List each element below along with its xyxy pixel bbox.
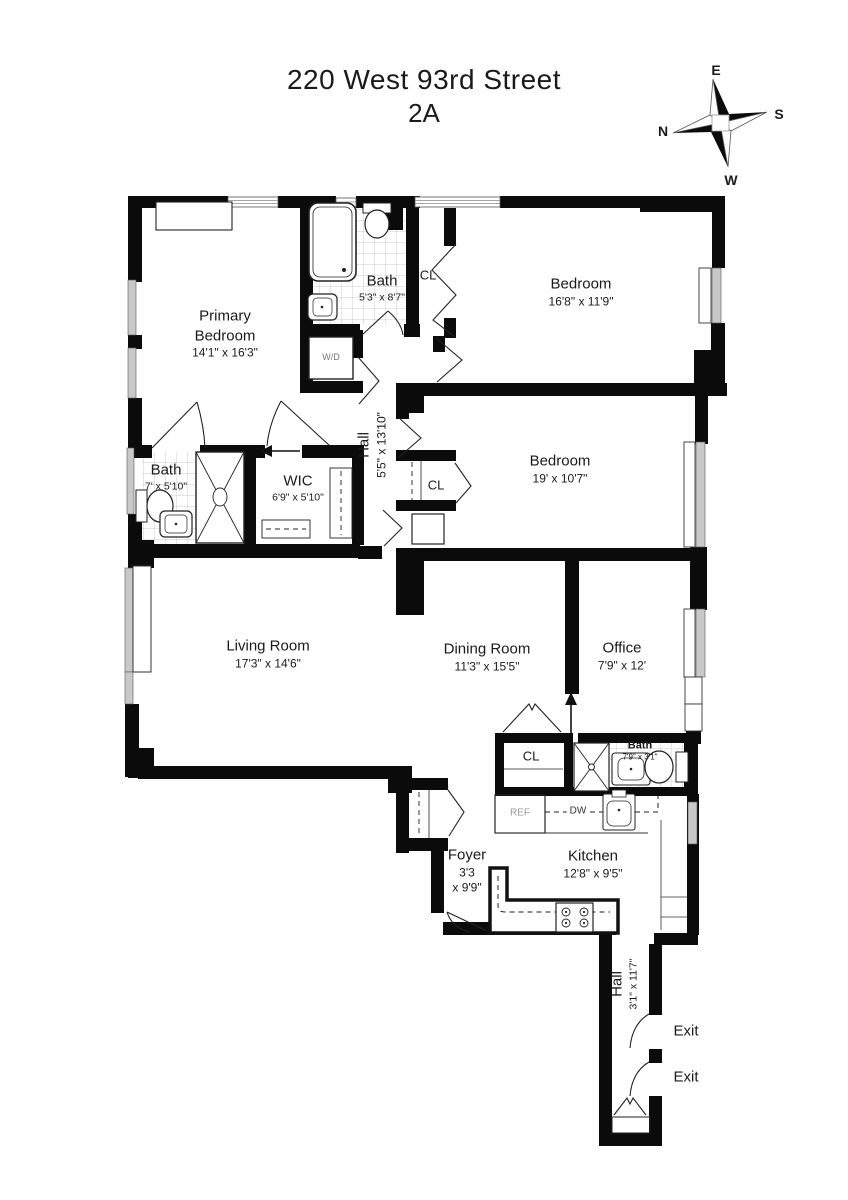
washer-dryer-label: W/D <box>322 352 340 364</box>
room-label-hall-center: Hall 5'5" x 13'10" <box>354 412 389 478</box>
compass-west-label: W <box>724 171 737 189</box>
compass-south-label: S <box>774 105 783 123</box>
closet-label-mid: CL <box>428 478 445 495</box>
compass-rose-graphic <box>673 79 767 167</box>
room-label-wic: WIC 6'9" x 5'10" <box>272 471 324 504</box>
refrigerator-label: REF <box>510 807 530 820</box>
room-label-hall-bottom: Hall 3'1" x 11'7" <box>607 959 640 1010</box>
closet-label-kitchen: CL <box>523 749 540 766</box>
room-label-bath-left: Bath 7' x 5'10" <box>145 460 187 493</box>
dishwasher-label: DW <box>567 805 590 818</box>
floorplan-drawing <box>0 0 848 1200</box>
room-label-foyer: Foyer 3'3 x 9'9" <box>448 846 486 897</box>
room-label-office: Office 7'9" x 12' <box>598 638 646 673</box>
room-label-dining-room: Dining Room 11'3" x 15'5" <box>444 639 531 674</box>
room-label-living-room: Living Room 17'3" x 14'6" <box>226 636 309 671</box>
room-label-bath-top: Bath 5'3" x 8'7" <box>359 271 405 304</box>
compass-north-label: N <box>658 122 668 140</box>
exit-label-1: Exit <box>673 1021 698 1041</box>
floorplan-page: 220 West 93rd Street 2A <box>0 0 848 1200</box>
room-label-kitchen: Kitchen 12'8" x 9'5" <box>563 846 622 881</box>
closet-label-top: CL <box>420 268 437 285</box>
room-label-bedroom-top: Bedroom 16'8" x 11'9" <box>549 274 614 309</box>
room-label-bedroom-mid: Bedroom 19' x 10'7" <box>530 451 591 486</box>
room-label-bath-small: Bath 7'9" x 3'1" <box>623 739 658 764</box>
exit-label-2: Exit <box>673 1067 698 1087</box>
room-label-primary-bedroom: Primary Bedroom 14'1" x 16'3" <box>192 307 258 362</box>
compass-east-label: E <box>711 61 720 79</box>
